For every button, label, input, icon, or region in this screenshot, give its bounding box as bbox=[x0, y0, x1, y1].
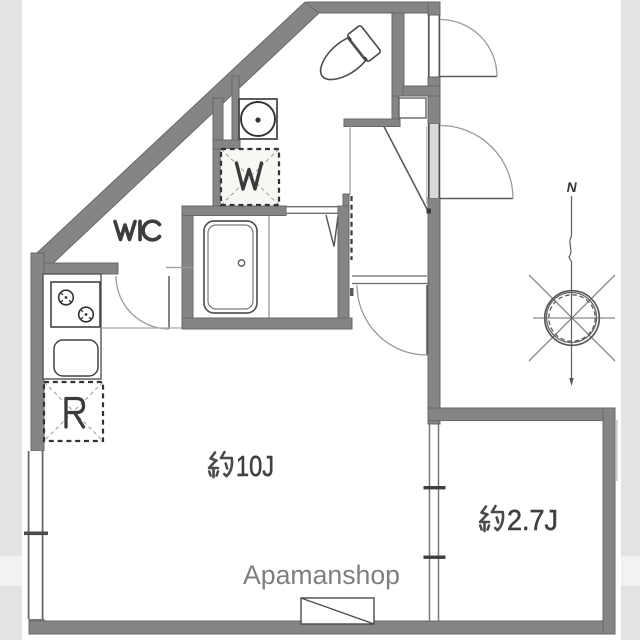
svg-text:10J: 10J bbox=[236, 451, 274, 483]
svg-text:2.7J: 2.7J bbox=[507, 505, 558, 537]
svg-text:Apamanshop: Apamanshop bbox=[243, 560, 400, 590]
